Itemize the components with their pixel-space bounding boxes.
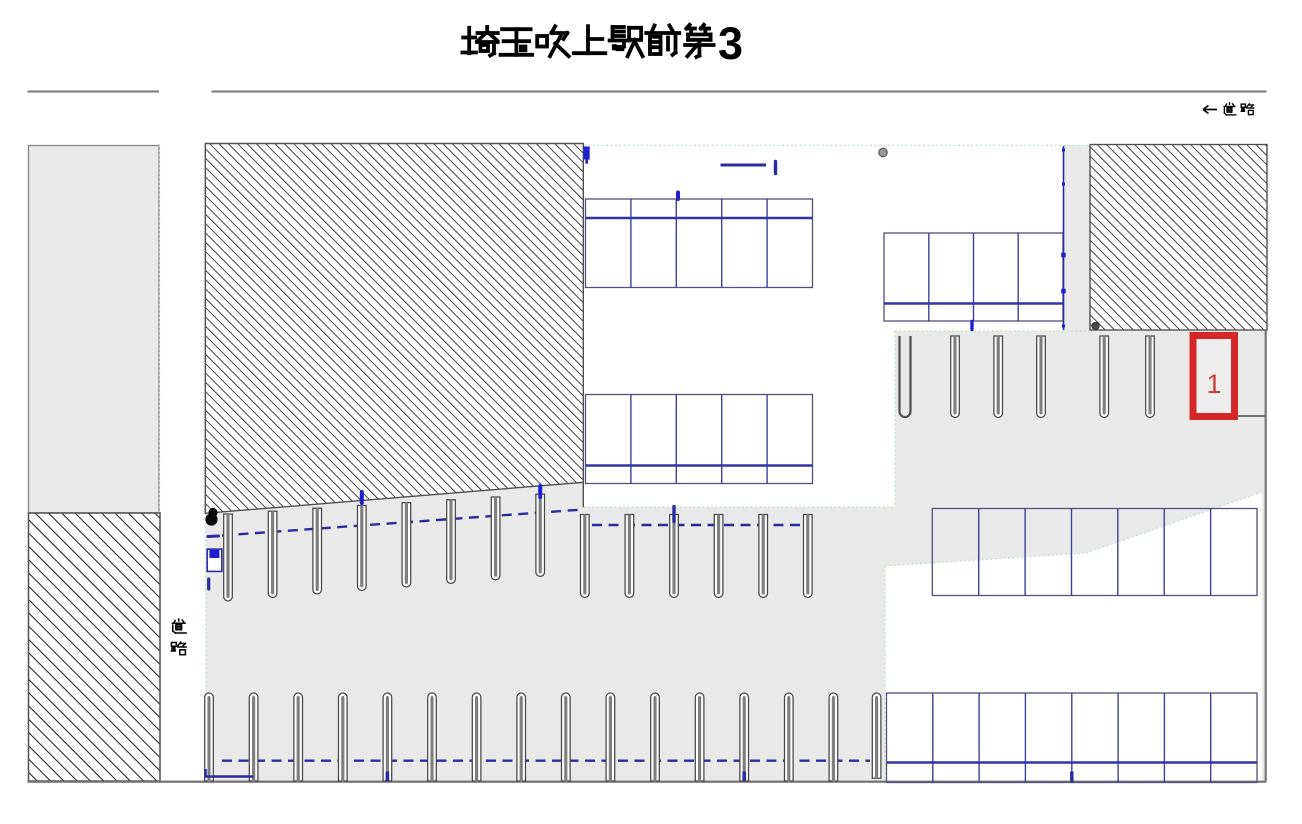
svg-text:3: 3 <box>718 18 743 69</box>
svg-text:1: 1 <box>1206 369 1221 399</box>
